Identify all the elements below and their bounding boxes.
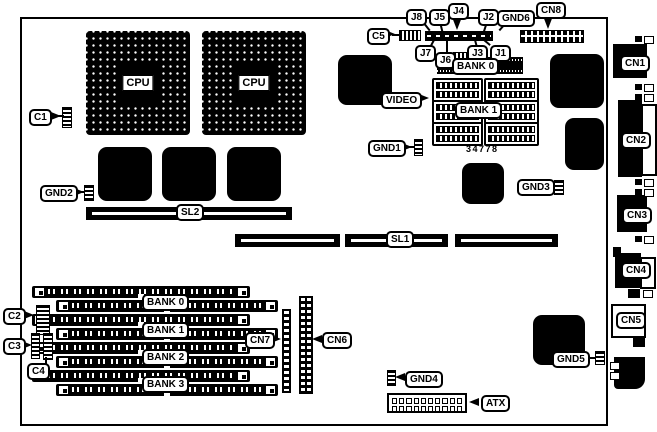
simm-slot-3 (32, 314, 250, 326)
simm-slot-5 (32, 342, 250, 354)
dip-socket (484, 78, 539, 102)
cpu-socket-2: CPU (202, 31, 306, 135)
connector-tab (610, 372, 620, 380)
component-c4 (43, 333, 53, 360)
callout-j2: J2 (478, 9, 499, 26)
callout-gnd1: GND1 (368, 140, 406, 157)
simm-slot-7 (32, 370, 250, 382)
edge-tab (644, 84, 654, 92)
cpu-socket-1: CPU (86, 31, 190, 135)
callout-j4: J4 (448, 3, 469, 20)
edge-tab (644, 179, 654, 187)
callout-cn8: CN8 (536, 2, 566, 19)
edge-tab (635, 36, 642, 42)
sl1-slot-segment (235, 234, 340, 247)
callout-j8: J8 (406, 9, 427, 26)
capacitor-c1 (62, 107, 72, 128)
part-number: 34778 (466, 144, 499, 154)
callout-gnd4: GND4 (405, 371, 443, 388)
bank0-label: BANK 0 (142, 294, 189, 311)
dip-socket (432, 122, 483, 146)
mem-bank0-label: BANK 0 (452, 58, 499, 75)
simm-slot-1 (32, 286, 250, 298)
dip-socket (432, 78, 483, 102)
qfp-chip (550, 54, 604, 108)
sl2-label: SL2 (176, 204, 204, 221)
edge-tab (635, 189, 642, 195)
callout-cn4: CN4 (621, 262, 651, 279)
edge-stub (633, 337, 645, 347)
cn8-connector (520, 30, 584, 43)
cpu-label: CPU (122, 75, 153, 91)
dip-socket (484, 122, 539, 146)
callout-atx: ATX (481, 395, 510, 412)
callout-c4: C4 (27, 363, 50, 380)
motherboard-diagram: CPU CPU SL2 SL1 C1 GND2 C5 J8 J5 J4 J2 G… (0, 0, 657, 432)
callout-gnd3: GND3 (517, 179, 555, 196)
qfp-chip (162, 147, 216, 201)
sl1-slot-segment (455, 234, 558, 247)
component-c3 (31, 333, 40, 359)
callout-gnd6: GND6 (497, 10, 535, 27)
callout-gnd2: GND2 (40, 185, 78, 202)
callout-cn7: CN7 (245, 332, 275, 349)
pointer-arrow (469, 398, 479, 406)
edge-tab (635, 84, 642, 90)
callout-cn5: CN5 (616, 312, 646, 329)
edge-tab (643, 290, 653, 298)
edge-tab (644, 189, 654, 197)
cn7-connector (282, 309, 291, 393)
cn6-connector (299, 296, 313, 394)
edge-tab (644, 236, 654, 244)
callout-c3: C3 (3, 338, 26, 355)
qfp-chip (565, 118, 604, 170)
pointer-arrow (312, 335, 322, 343)
capacitor-gnd5 (595, 351, 605, 365)
qfp-chip (227, 147, 281, 201)
atx-connector (387, 393, 467, 413)
callout-c1: C1 (29, 109, 52, 126)
component-c2 (36, 305, 50, 335)
callout-cn6: CN6 (322, 332, 352, 349)
callout-j7: J7 (415, 45, 436, 62)
callout-cn3: CN3 (622, 207, 652, 224)
callout-j5: J5 (429, 9, 450, 26)
edge-tab (644, 36, 654, 44)
bank3-label: BANK 3 (142, 376, 189, 393)
callout-video: VIDEO (381, 92, 422, 109)
callout-c5: C5 (367, 28, 390, 45)
capacitor-gnd2 (84, 185, 94, 201)
callout-c2: C2 (3, 308, 26, 325)
bank2-label: BANK 2 (142, 349, 189, 366)
sl1-label: SL1 (386, 231, 414, 248)
cpu-label: CPU (238, 75, 269, 91)
edge-tab (644, 94, 654, 102)
callout-cn1: CN1 (620, 55, 650, 72)
edge-stub (613, 247, 621, 257)
edge-tab (635, 179, 642, 185)
callout-gnd5: GND5 (552, 351, 590, 368)
bank1-label: BANK 1 (142, 322, 189, 339)
qfp-chip (98, 147, 152, 201)
capacitor-gnd1 (414, 139, 423, 156)
resistor-pack-c5 (399, 30, 421, 41)
edge-tab (635, 236, 642, 242)
callout-cn2: CN2 (621, 132, 651, 149)
qfp-chip (462, 163, 504, 204)
mem-bank1-label: BANK 1 (455, 102, 502, 119)
edge-tab (635, 94, 642, 100)
capacitor-gnd3 (554, 180, 564, 195)
connector-tab (610, 362, 620, 370)
edge-stub (628, 289, 640, 298)
pointer-arrow (51, 112, 61, 120)
pointer-arrow (395, 373, 405, 381)
